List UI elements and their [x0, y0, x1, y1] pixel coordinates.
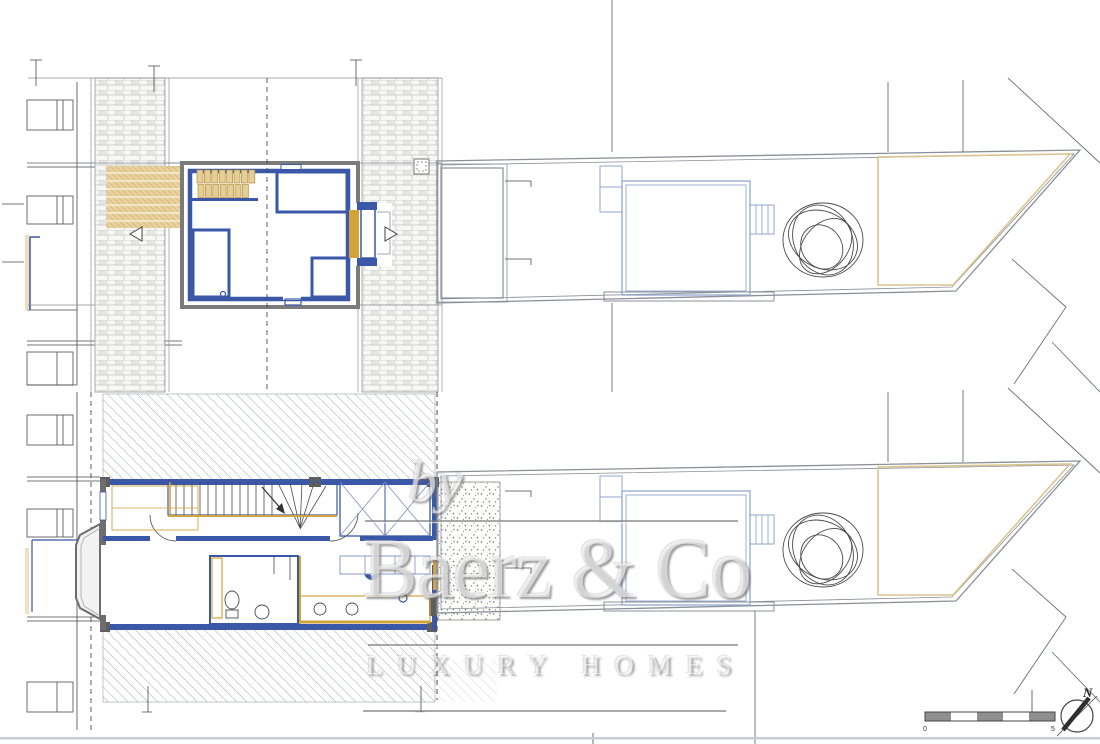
- neighbor-plot-lines-upper: [612, 0, 1100, 392]
- flat-roof-extension: [437, 164, 507, 302]
- scale-bar: 0 5: [923, 712, 1055, 733]
- floorplan-sheet: 0 5 N by Baerz & Co LUXURY HOMES: [0, 0, 1100, 744]
- skylight-icon: [414, 159, 429, 174]
- garden-plot-outline: [437, 150, 1080, 303]
- neighbor-building-hatch-top: [103, 394, 435, 480]
- garden-upper: [437, 0, 1100, 392]
- sheet-bottom-border: [0, 737, 1100, 740]
- attic-window-slit: [281, 165, 301, 170]
- attic-room: [182, 163, 358, 307]
- roof-strip-left: [91, 78, 169, 392]
- neighbor-building-hatch-patch: [438, 660, 497, 702]
- floorplan-drawing: 0 5 N: [0, 0, 1100, 744]
- north-arrow: N: [1057, 685, 1097, 736]
- garden-plot-outline-2: [437, 461, 1080, 613]
- neighbor-tan-strip-2: [25, 548, 29, 614]
- garden-terrace-2: [600, 476, 774, 605]
- facade-window: [100, 492, 106, 520]
- garden-tree: [778, 195, 868, 285]
- garden-lower: [437, 388, 1100, 744]
- neighbor-plot-lines-lower: [755, 388, 1100, 744]
- ground-house: [76, 477, 439, 632]
- scale-end-label: 5: [1051, 726, 1055, 733]
- north-label: N: [1082, 685, 1093, 700]
- garden-tan-boundary-2: [878, 464, 1070, 595]
- garden-tan-boundary: [878, 154, 1070, 285]
- garden-tree-2: [778, 505, 868, 595]
- neighbor-blue-corner: [30, 237, 40, 310]
- garden-terrace: [600, 166, 774, 295]
- neighbor-building-hatch-bottom: [103, 620, 435, 702]
- scale-start-label: 0: [923, 726, 927, 733]
- ground-floor-plan: [25, 388, 1100, 744]
- roof-tan-patch: [106, 166, 180, 228]
- upper-floor-plan: [25, 0, 1100, 392]
- rear-terrace-stipple: [438, 482, 500, 620]
- bay-window: [76, 524, 100, 619]
